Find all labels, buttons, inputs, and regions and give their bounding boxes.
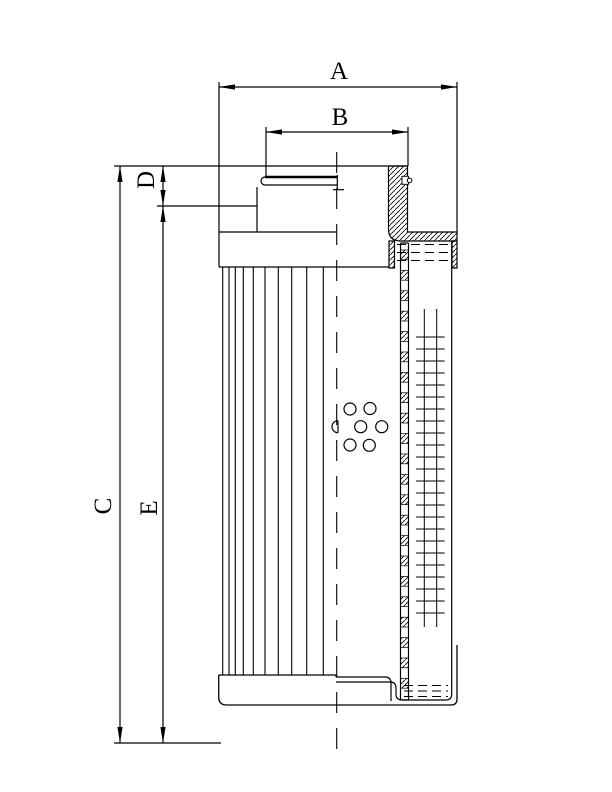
drawing-page: ABCDE (0, 0, 612, 792)
perforation-cell (401, 576, 409, 586)
perforation-cell (401, 638, 409, 648)
perforation-cell (401, 332, 409, 342)
perforation-cell (401, 454, 409, 464)
perforation-cell (401, 515, 409, 525)
perforation-cell (401, 597, 409, 607)
perforation-cell (401, 678, 409, 688)
hole (344, 439, 356, 451)
hole (344, 403, 356, 415)
dim-label-b: B (332, 104, 349, 131)
paper-background (0, 0, 612, 792)
hatched-area (389, 241, 395, 268)
hole (355, 421, 367, 433)
perforation-cell (401, 434, 409, 444)
perforation-cell (401, 311, 409, 321)
perforation-cell (401, 372, 409, 382)
perforation-cell (401, 250, 409, 260)
perforation-cell (401, 270, 409, 280)
dim-label-c: C (90, 498, 117, 515)
perforation-cell (401, 393, 409, 403)
dim-label-e: E (136, 500, 163, 515)
perforation-cell (401, 474, 409, 484)
perforation-cell (401, 495, 409, 505)
perforation-cell (401, 536, 409, 546)
perforation-cell (401, 556, 409, 566)
technical-drawing: ABCDE (0, 0, 612, 792)
perforation-cell (401, 658, 409, 668)
dim-label-d: D (133, 171, 160, 189)
perforation-cell (401, 617, 409, 627)
hole (364, 403, 376, 415)
hole (363, 439, 375, 451)
dim-label-a: A (330, 58, 348, 85)
hatched-area (452, 241, 457, 268)
o-ring-icon (407, 178, 412, 183)
perforation-cell (401, 291, 409, 301)
perforation-cell (401, 352, 409, 362)
hole (376, 421, 388, 433)
perforation-cell (401, 413, 409, 423)
